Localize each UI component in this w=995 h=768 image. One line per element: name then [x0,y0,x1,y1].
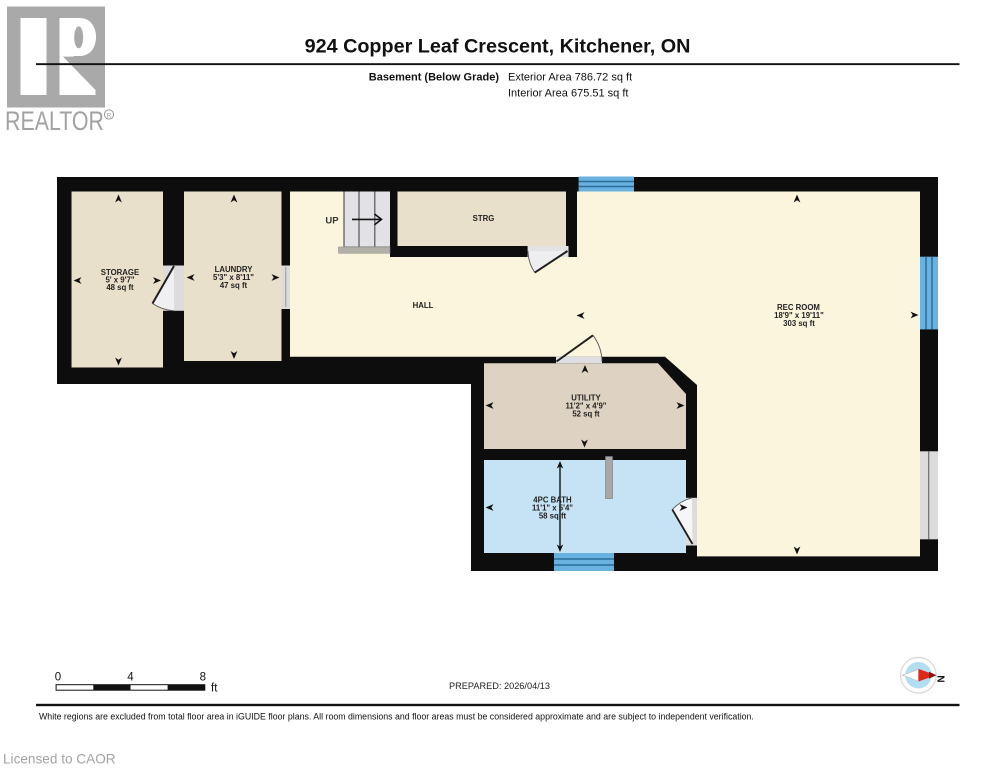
svg-text:PREPARED: 2026/04/13: PREPARED: 2026/04/13 [449,681,550,691]
svg-text:47 sq ft: 47 sq ft [220,281,248,290]
svg-text:HALL: HALL [413,301,434,310]
svg-text:Basement (Below Grade): Basement (Below Grade) [369,72,500,84]
svg-text:UP: UP [325,215,339,226]
svg-text:8: 8 [200,672,206,684]
svg-text:58 sq ft: 58 sq ft [539,512,567,521]
svg-text:N: N [935,675,946,682]
svg-text:STRG: STRG [473,214,495,223]
svg-text:Exterior Area 786.72 sq ft: Exterior Area 786.72 sq ft [508,72,632,84]
svg-text:White regions are excluded fro: White regions are excluded from total fl… [39,712,754,722]
svg-text:303 sq ft: 303 sq ft [783,319,815,328]
svg-text:52 sq ft: 52 sq ft [572,410,600,419]
svg-text:924 Copper Leaf Crescent, Kitc: 924 Copper Leaf Crescent, Kitchener, ON [305,36,691,58]
svg-text:48 sq ft: 48 sq ft [106,283,134,292]
svg-text:0: 0 [55,672,61,684]
svg-text:R: R [107,113,112,120]
svg-text:Interior Area 675.51 sq ft: Interior Area 675.51 sq ft [508,88,628,100]
svg-text:REALTOR: REALTOR [5,106,104,136]
svg-text:ft: ft [211,682,218,694]
svg-text:Licensed to CAOR: Licensed to CAOR [3,752,116,767]
svg-text:4: 4 [127,672,134,684]
